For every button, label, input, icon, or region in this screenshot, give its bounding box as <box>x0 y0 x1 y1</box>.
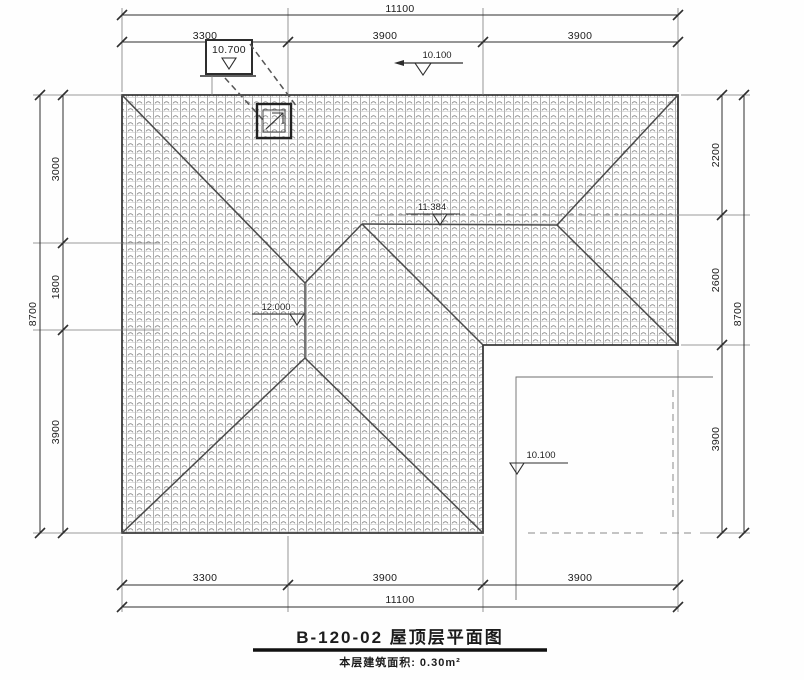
roof-hatch <box>122 95 678 533</box>
dim-left-overall: 8700 <box>27 302 39 327</box>
dim-right-seg-2: 2600 <box>710 268 722 293</box>
level-triangle-icon <box>415 63 431 75</box>
ridge-wing-horizontal <box>362 224 557 225</box>
dim-right-seg-3: 3900 <box>710 427 722 452</box>
area-note: 本层建筑面积: 0.30m² <box>339 655 461 669</box>
terrace-wall-outline <box>516 377 713 600</box>
dim-bottom-overall: 11100 <box>385 594 414 606</box>
level-ridge-wing-value: 11.384 <box>418 202 446 213</box>
dim-bottom-seg-2: 3900 <box>373 572 398 584</box>
roof-plan-drawing: 11100 3300 3900 3900 3300 3900 3900 1110… <box>0 0 804 680</box>
dim-bottom-seg-3: 3900 <box>568 572 593 584</box>
drawing-title: B-120-02 屋顶层平面图 <box>296 628 504 647</box>
dim-right-overall: 8700 <box>732 302 744 327</box>
dim-left-seg-2: 1800 <box>50 275 62 300</box>
roof-plan-page: 11100 3300 3900 3900 3300 3900 3900 1110… <box>0 0 804 680</box>
dim-right-seg-1: 2200 <box>710 143 722 168</box>
dim-top-seg-3: 3900 <box>568 30 593 42</box>
dim-left-seg-3: 3900 <box>50 420 62 445</box>
level-eave-top-value: 10.100 <box>422 50 451 61</box>
dim-left-seg-1: 3000 <box>50 157 62 182</box>
terrace-wall-lines <box>516 377 713 600</box>
dim-top-overall: 11100 <box>385 3 414 15</box>
level-ridge-main-value: 12.000 <box>261 302 290 313</box>
level-terrace-value: 10.100 <box>526 450 555 461</box>
dim-bottom-seg-1: 3300 <box>193 572 218 584</box>
level-roof-access-value: 10.700 <box>212 44 246 56</box>
leader-arrow-icon <box>394 60 404 66</box>
level-marker-terrace: 10.100 <box>510 450 568 474</box>
level-triangle-icon <box>510 463 524 474</box>
title-block: B-120-02 屋顶层平面图 本层建筑面积: 0.30m² <box>253 628 547 669</box>
dim-top-seg-2: 3900 <box>373 30 398 42</box>
level-marker-eave-top: 10.100 <box>394 50 463 75</box>
level-marker-roof-access: 10.700 <box>200 40 256 95</box>
